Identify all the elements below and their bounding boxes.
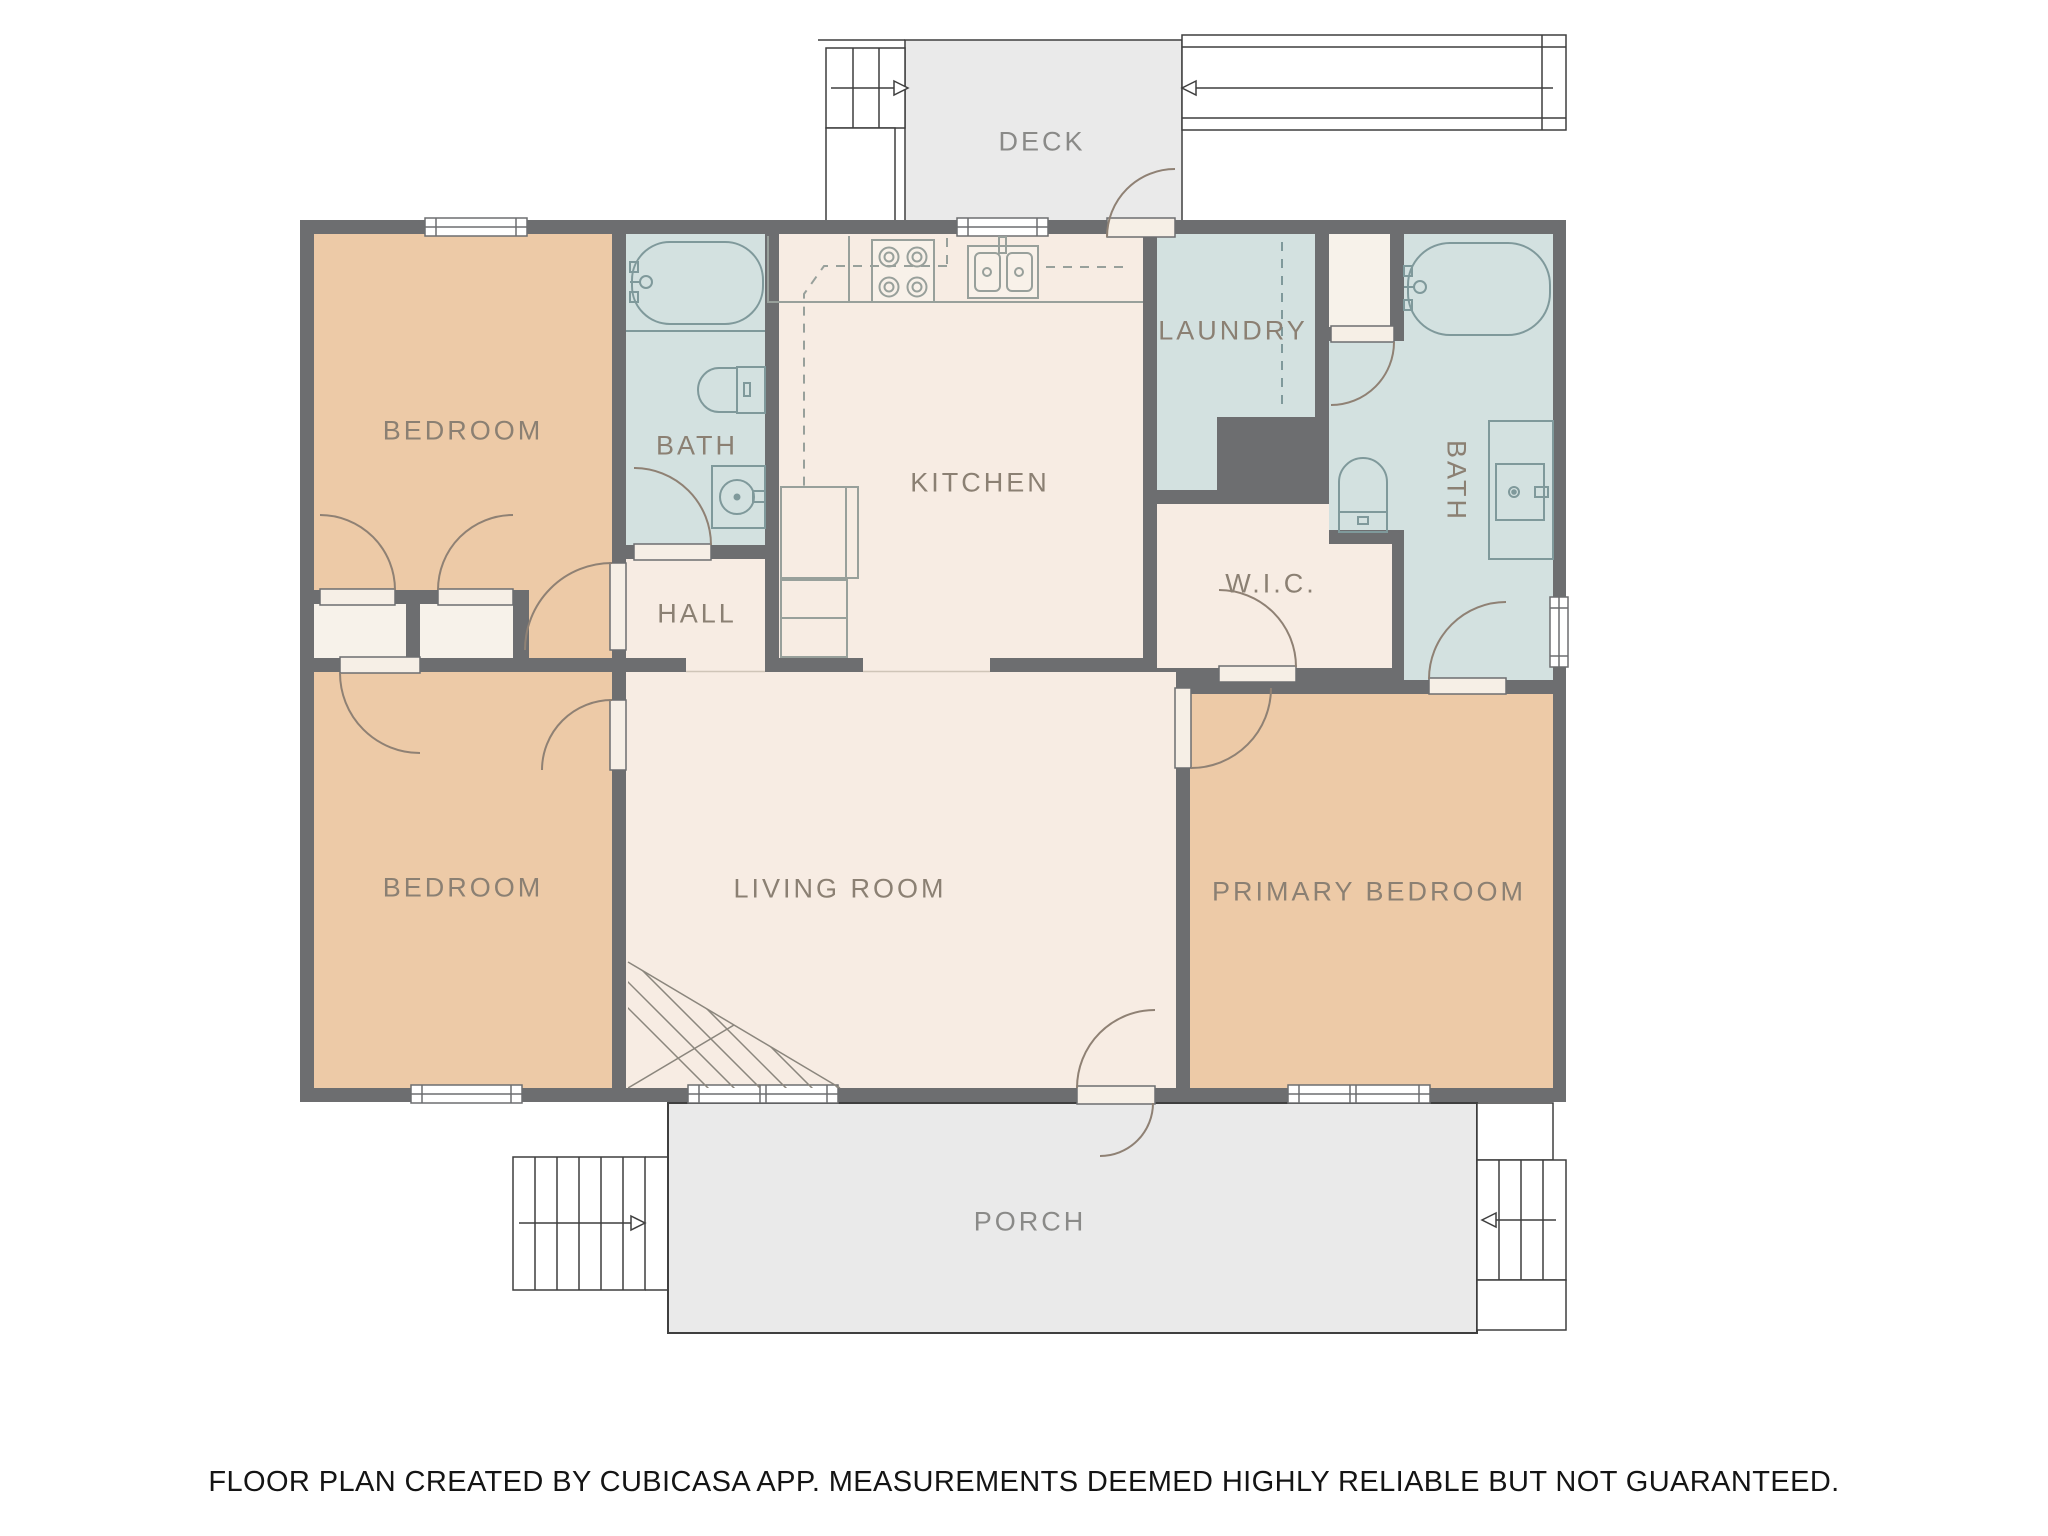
room-bath-ensuite-alcove (1329, 341, 1404, 530)
room-kitchen (779, 234, 1143, 658)
window (425, 218, 527, 236)
wic-label: W.I.C. (1225, 569, 1317, 600)
living-room-label: LIVING ROOM (733, 874, 946, 905)
closet-left (314, 604, 406, 658)
door-bedroom-top (610, 563, 626, 650)
window (1288, 1085, 1430, 1103)
window (688, 1085, 838, 1103)
door-bath-main (634, 544, 711, 560)
kitchen-label: KITCHEN (910, 468, 1050, 499)
disclaimer-text: FLOOR PLAN CREATED BY CUBICASA APP. MEAS… (0, 1466, 2048, 1499)
door-primary-bedroom (1175, 688, 1191, 768)
room-bedroom-top (314, 234, 612, 590)
door-closet-left (320, 589, 395, 605)
opening-hall-living (686, 658, 765, 672)
room-bath-ensuite (1404, 234, 1553, 680)
deck-stairs (826, 48, 905, 222)
window (1550, 597, 1568, 667)
hall-label: HALL (657, 599, 737, 630)
door-bedroom-bottom (340, 657, 420, 673)
window (411, 1085, 522, 1103)
door-bedroom-bottom-living (610, 700, 626, 770)
bath-ensuite-label: BATH (1441, 440, 1472, 522)
stove-icon (872, 240, 934, 302)
door-deck-laundry (1107, 218, 1175, 237)
door-closet-right (438, 589, 513, 605)
bedroom-top-label: BEDROOM (383, 416, 544, 447)
deck-area (818, 35, 1566, 222)
door-bath-ensuite (1429, 678, 1506, 694)
room-laundry-extension (1157, 417, 1217, 490)
closet-right (420, 604, 513, 658)
kitchen-sink-icon (968, 237, 1038, 298)
laundry-label: LAUNDRY (1158, 316, 1308, 347)
bath-main-label: BATH (656, 431, 738, 462)
room-wic-extension (1329, 544, 1392, 668)
porch-label: PORCH (974, 1207, 1087, 1238)
opening-kitchen-living (863, 658, 990, 672)
deck-label: DECK (998, 127, 1085, 158)
door-closet-linen (1331, 326, 1394, 342)
primary-bedroom-label: PRIMARY BEDROOM (1212, 877, 1526, 908)
window (957, 218, 1048, 236)
walkway (1182, 35, 1566, 130)
door-wic (1219, 666, 1296, 682)
door-front-entry (1077, 1086, 1155, 1104)
floor-plan-canvas: DECK BEDROOM BATH KITCHEN LAUNDRY BATH H… (0, 0, 2048, 1536)
bedroom-bottom-label: BEDROOM (383, 873, 544, 904)
closet-linen (1329, 234, 1390, 327)
floor-plan-drawing (0, 0, 2048, 1536)
